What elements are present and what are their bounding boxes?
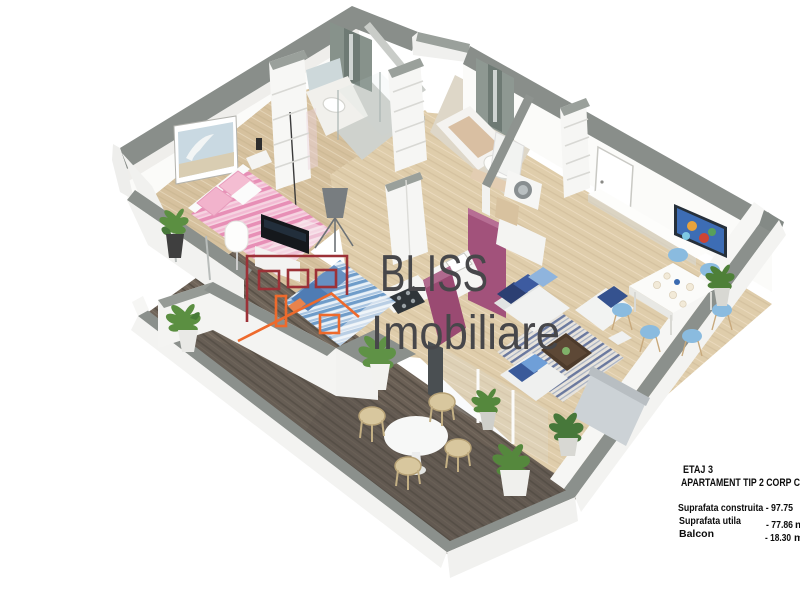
svg-text:- 77.86: - 77.86 xyxy=(766,519,793,531)
svg-text:ETAJ 3: ETAJ 3 xyxy=(683,464,713,476)
svg-text:Balcon: Balcon xyxy=(679,528,714,540)
svg-text:Imobiliare: Imobiliare xyxy=(371,307,560,360)
svg-text:APARTAMENT TIP 2 CORP C: APARTAMENT TIP 2 CORP C xyxy=(681,477,800,489)
svg-text:m: m xyxy=(795,519,800,531)
svg-text:Suprafata utila: Suprafata utila xyxy=(679,515,741,527)
svg-text:- 18.30: - 18.30 xyxy=(765,532,791,544)
svg-text:BLISS: BLISS xyxy=(380,245,488,303)
svg-text:Suprafata construita - 97.75: Suprafata construita - 97.75 xyxy=(678,502,793,514)
svg-text:m: m xyxy=(794,532,800,544)
